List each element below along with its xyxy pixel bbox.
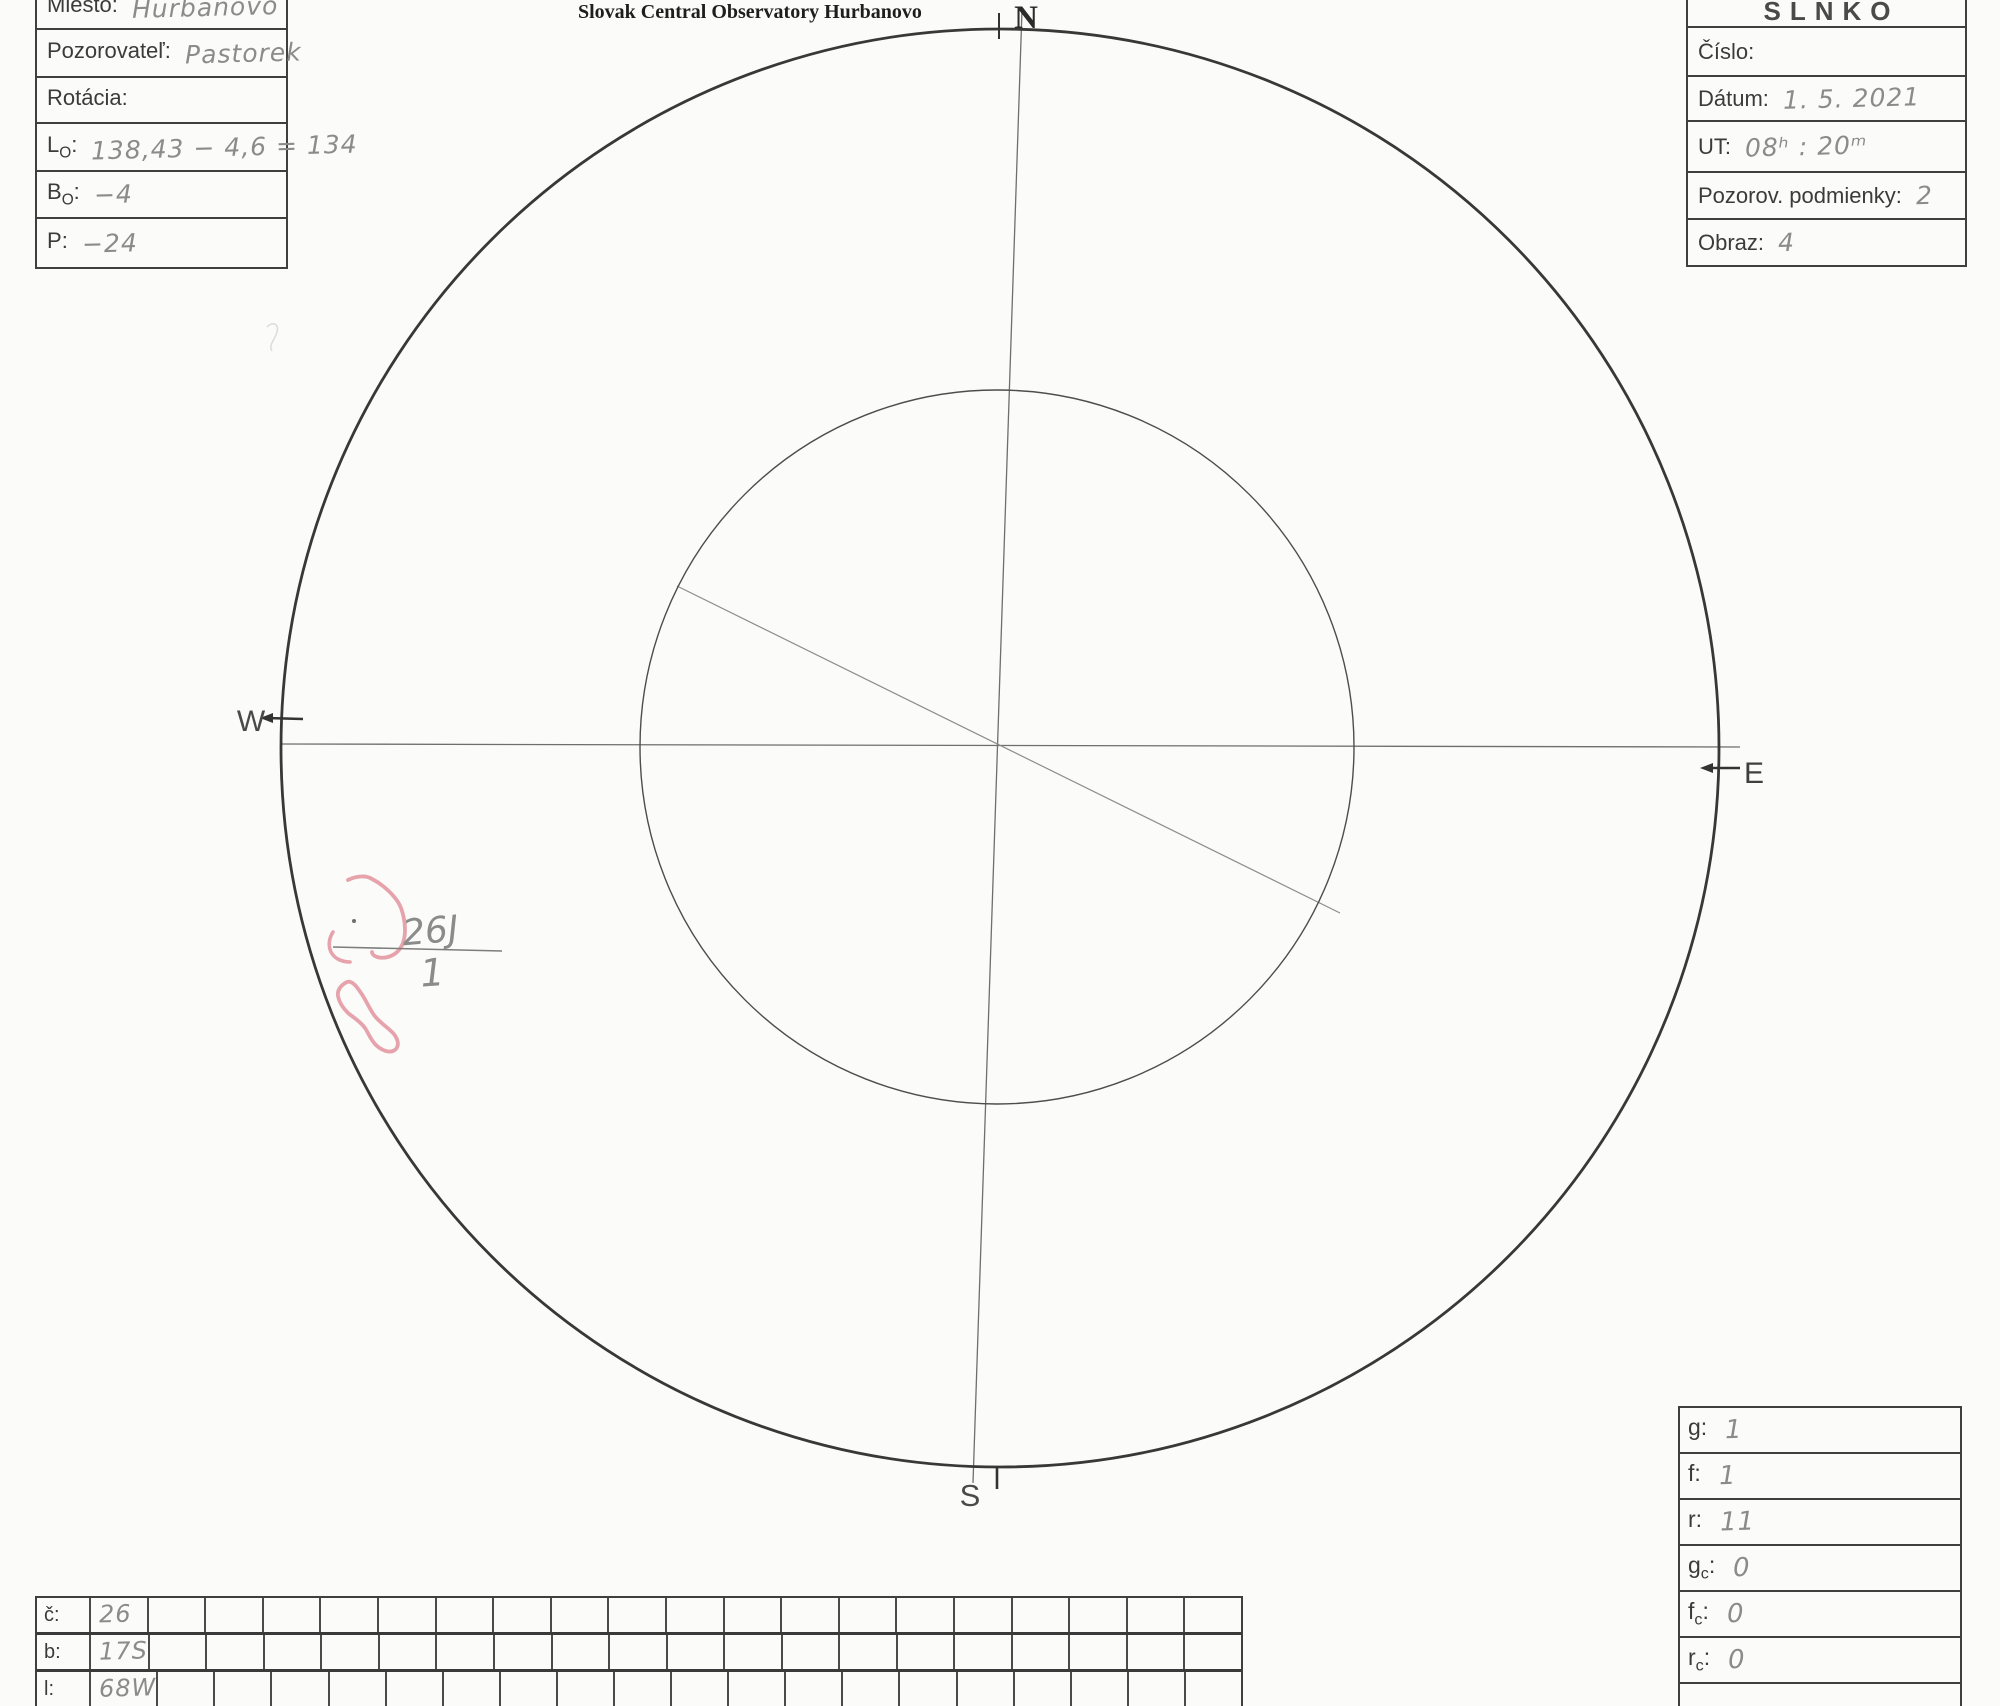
compass-east-label: E (1744, 757, 1764, 790)
miesto-value: Hurbanovo (132, 0, 279, 23)
empty-cell (270, 1672, 327, 1706)
r-label: r: (1688, 1506, 1702, 1538)
rotacia-label: Rotácia: (47, 85, 128, 115)
b-label: b: (37, 1635, 89, 1669)
sunspot-outline-lower (338, 982, 398, 1052)
empty-cell (499, 1672, 556, 1706)
empty-cell (838, 1598, 896, 1632)
summary-row-gc: gc: 0 (1680, 1546, 1960, 1592)
positions-row-l: l: 68W (37, 1672, 1241, 1706)
empty-cell (784, 1672, 841, 1706)
fc-label: fc: (1688, 1598, 1709, 1630)
empty-cell (1011, 1598, 1069, 1632)
empty-cell (953, 1635, 1011, 1669)
g-value: 1 (1725, 1415, 1743, 1445)
empty-cell (727, 1672, 784, 1706)
form-row-datum: Dátum: 1. 5. 2021 (1688, 77, 1965, 122)
empty-cell (723, 1635, 781, 1669)
empty-cell (551, 1635, 609, 1669)
summary-row-rc: rc: 0 (1680, 1638, 1960, 1684)
empty-cell (608, 1635, 666, 1669)
empty-cell (320, 1635, 378, 1669)
sunspot-core-dot (352, 919, 356, 923)
l-label: l: (37, 1672, 89, 1706)
right-form: SLNKO Číslo: Dátum: 1. 5. 2021 UT: 08ʰ :… (1686, 0, 1967, 267)
diagonal-guide-line (677, 586, 1340, 913)
positions-row-b: b: 17S (37, 1635, 1241, 1672)
empty-cell (377, 1598, 435, 1632)
f-label: f: (1688, 1460, 1701, 1492)
empty-cell (607, 1598, 665, 1632)
podmienky-label: Pozorov. podmienky: (1698, 183, 1902, 209)
meridian-line (973, 10, 1022, 1483)
form-row-ut: UT: 08ʰ : 20ᵐ (1688, 122, 1965, 173)
left-form: Miesto: Hurbanovo Pozorovateľ: Pastorek … (35, 0, 288, 269)
form-row-obraz: Obraz: 4 (1688, 220, 1965, 267)
equator-line (281, 744, 1740, 747)
empty-cell (319, 1598, 377, 1632)
empty-cell (147, 1598, 205, 1632)
datum-label: Dátum: (1698, 86, 1769, 112)
empty-cell (723, 1598, 781, 1632)
empty-cell (1126, 1635, 1184, 1669)
empty-cell (1013, 1672, 1070, 1706)
c-label: č: (37, 1598, 89, 1632)
empty-cell (442, 1672, 499, 1706)
summary-row-g: g: 1 (1680, 1408, 1960, 1454)
empty-cell (1070, 1672, 1127, 1706)
empty-cell (665, 1598, 723, 1632)
ut-value: 08ʰ : 20ᵐ (1745, 130, 1868, 162)
cislo-label: Číslo: (1698, 39, 1754, 65)
empty-cell (1127, 1672, 1184, 1706)
empty-cell (956, 1672, 1013, 1706)
group-count-label: 1 (419, 950, 446, 996)
sunspot-outline-upper (348, 876, 405, 957)
p-value: −24 (81, 228, 138, 258)
empty-cell (841, 1672, 898, 1706)
fc-value: 0 (1726, 1599, 1744, 1629)
empty-cell (550, 1598, 608, 1632)
obraz-label: Obraz: (1698, 230, 1764, 256)
summary-table: g: 1 f: 1 r: 11 gc: 0 fc: 0 rc: 0 (1678, 1406, 1962, 1706)
obraz-value: 4 (1778, 228, 1796, 257)
b-value: 17S (99, 1636, 148, 1665)
empty-cell (435, 1598, 493, 1632)
empty-cell (898, 1672, 955, 1706)
compass-west-label: W (237, 705, 266, 738)
form-row-p: P: −24 (37, 219, 286, 269)
ut-label: UT: (1698, 134, 1731, 160)
empty-cell (378, 1635, 436, 1669)
gc-label: gc: (1688, 1552, 1715, 1584)
empty-cell (781, 1635, 839, 1669)
compass-north-label: N (1014, 0, 1038, 36)
form-row-bo: BO: −4 (37, 172, 286, 219)
empty-cell (780, 1598, 838, 1632)
form-row-rotacia: Rotácia: (37, 78, 286, 124)
form-row-pozorovatel: Pozorovateľ: Pastorek (37, 30, 286, 78)
pozorovatel-label: Pozorovateľ: (47, 38, 171, 68)
empty-cell (1184, 1672, 1241, 1706)
form-row-miesto: Miesto: Hurbanovo (37, 0, 286, 30)
empty-cell (895, 1598, 953, 1632)
empty-cell (556, 1672, 613, 1706)
empty-cell (613, 1672, 670, 1706)
empty-cell (1183, 1635, 1241, 1669)
summary-row-f: f: 1 (1680, 1454, 1960, 1500)
compass-south-label: S (960, 1478, 981, 1513)
empty-cell (204, 1598, 262, 1632)
positions-table: č: 26 b: 17S l: 68W (35, 1596, 1243, 1706)
c-value-cell: 26 (89, 1598, 147, 1632)
r-value: 11 (1720, 1507, 1756, 1538)
empty-cell (205, 1635, 263, 1669)
empty-cell (493, 1635, 551, 1669)
datum-value: 1. 5. 2021 (1783, 82, 1921, 115)
empty-cell (838, 1635, 896, 1669)
right-form-header: SLNKO (1688, 0, 1965, 28)
summary-row-fc: fc: 0 (1680, 1592, 1960, 1638)
empty-cell (148, 1635, 206, 1669)
empty-cell (1011, 1635, 1069, 1669)
empty-cell (666, 1635, 724, 1669)
empty-cell (1068, 1635, 1126, 1669)
empty-cell (213, 1672, 270, 1706)
empty-cell (435, 1635, 493, 1669)
l-value-cell: 68W (89, 1672, 156, 1706)
empty-cell (1183, 1598, 1241, 1632)
east-arrow-head-icon (1700, 763, 1713, 773)
gc-value: 0 (1733, 1553, 1751, 1583)
miesto-label: Miesto: (47, 0, 118, 22)
positions-row-c: č: 26 (37, 1598, 1241, 1635)
empty-cell (1126, 1598, 1184, 1632)
empty-cell (328, 1672, 385, 1706)
empty-cell (1068, 1598, 1126, 1632)
c-value: 26 (99, 1600, 132, 1629)
outer-solar-limb-circle (281, 29, 1719, 1467)
empty-cell (953, 1598, 1011, 1632)
podmienky-value: 2 (1915, 181, 1933, 210)
l-value: 68W (99, 1673, 157, 1702)
stray-pencil-mark (267, 324, 277, 351)
form-row-podmienky: Pozorov. podmienky: 2 (1688, 173, 1965, 220)
empty-cell (262, 1598, 320, 1632)
bo-label: BO: (47, 179, 80, 209)
empty-cell (156, 1672, 213, 1706)
p-label: P: (47, 228, 68, 258)
group-number-label: 26J (400, 909, 460, 955)
summary-row-r: r: 11 (1680, 1500, 1960, 1546)
empty-cell (263, 1635, 321, 1669)
b-value-cell: 17S (89, 1635, 148, 1669)
rc-label: rc: (1688, 1644, 1710, 1676)
g-label: g: (1688, 1414, 1707, 1446)
empty-cell (670, 1672, 727, 1706)
empty-cell (492, 1598, 550, 1632)
rc-value: 0 (1728, 1645, 1746, 1675)
bo-value: −4 (93, 179, 133, 209)
pozorovatel-value: Pastorek (184, 37, 301, 69)
empty-cell (896, 1635, 954, 1669)
form-row-lo: LO: 138,43 − 4,6 = 134 (37, 124, 286, 172)
empty-cell (385, 1672, 442, 1706)
f-value: 1 (1718, 1461, 1736, 1491)
form-row-cislo: Číslo: (1688, 28, 1965, 77)
lo-label: LO: (47, 132, 77, 162)
